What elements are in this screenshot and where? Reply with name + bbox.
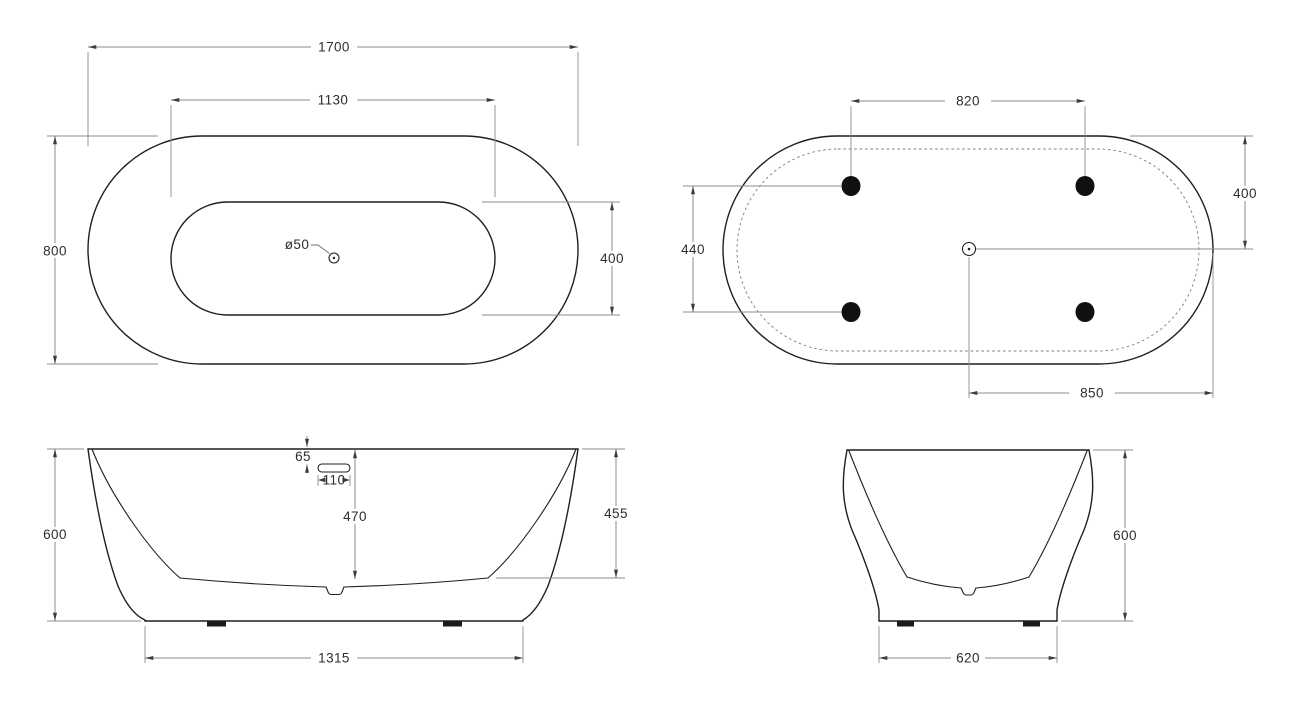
dim-depth-side: 455 xyxy=(604,506,628,521)
dim-base-length: 1315 xyxy=(318,651,350,666)
foot-back-left xyxy=(842,302,861,322)
drain-leader-line xyxy=(311,245,330,254)
foot-back-right xyxy=(1076,302,1095,322)
inner-wall-right xyxy=(488,449,576,578)
inner-wall-right xyxy=(1029,451,1087,577)
dim-feet-spacing-length: 820 xyxy=(956,94,980,109)
overflow-slot xyxy=(318,464,350,472)
outer-wall-left xyxy=(843,450,879,621)
top-view: ø50 1700 1130 800 400 xyxy=(38,40,629,365)
foot-pad-right xyxy=(443,621,462,627)
front-view: 600 65 110 470 455 1315 xyxy=(38,436,633,666)
basin-floor-left xyxy=(907,577,961,588)
tub-base-outline xyxy=(723,136,1213,364)
foot-pad-left xyxy=(207,621,226,627)
dim-base-width: 620 xyxy=(956,651,980,666)
drain-recess xyxy=(961,588,976,595)
basin-floor-right xyxy=(976,577,1029,588)
dim-feet-spacing-width: 440 xyxy=(681,242,705,257)
side-view: 600 620 xyxy=(843,450,1142,666)
drawing-canvas: ø50 1700 1130 800 400 xyxy=(0,0,1300,722)
outer-wall-left xyxy=(88,449,145,621)
dim-height: 600 xyxy=(43,527,67,542)
dim-height: 600 xyxy=(1113,528,1137,543)
drain-center-dot xyxy=(333,257,335,259)
bathtub-technical-drawing: ø50 1700 1130 800 400 xyxy=(0,0,1300,722)
dim-inner-length: 1130 xyxy=(318,93,349,108)
dim-drain-to-edge-length: 850 xyxy=(1080,386,1104,401)
dim-depth-center: 470 xyxy=(343,509,367,524)
foot-pad-left xyxy=(897,621,914,627)
dim-inner-width: 400 xyxy=(600,251,624,266)
bottom-view: 820 440 400 850 xyxy=(676,94,1262,401)
drain-center-dot xyxy=(968,248,971,251)
inner-wall-left xyxy=(849,451,907,577)
dim-drain-diameter: ø50 xyxy=(285,237,309,252)
foot-front-left xyxy=(842,176,861,196)
tub-outer-rim-outline xyxy=(88,136,578,364)
basin-floor-left xyxy=(180,578,326,587)
dim-drain-to-edge-width: 400 xyxy=(1233,186,1257,201)
basin-floor-right xyxy=(344,578,488,587)
dim-overall-length: 1700 xyxy=(318,40,350,55)
drain-recess xyxy=(326,587,344,595)
dim-overall-width: 800 xyxy=(43,244,67,259)
tub-hidden-edge-outline xyxy=(737,149,1199,351)
inner-wall-left xyxy=(92,449,180,578)
outer-wall-right xyxy=(1057,450,1093,621)
dim-overflow-offset: 65 xyxy=(295,449,311,464)
foot-pad-right xyxy=(1023,621,1040,627)
foot-front-right xyxy=(1076,176,1095,196)
outer-wall-right xyxy=(523,449,578,621)
dim-overflow-width: 110 xyxy=(323,473,346,488)
